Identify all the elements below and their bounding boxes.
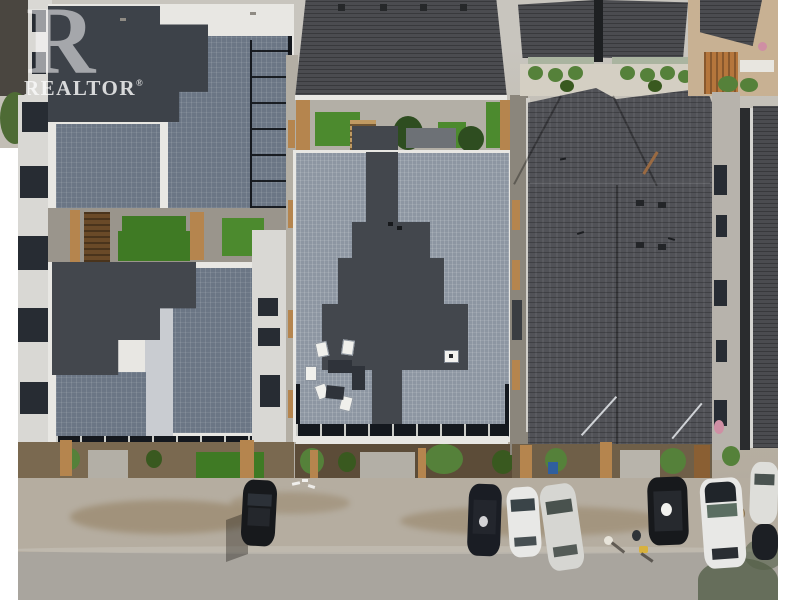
bush bbox=[722, 446, 740, 466]
roof-panel bbox=[56, 124, 162, 208]
awning-white bbox=[740, 60, 774, 72]
pavement-mark bbox=[120, 18, 126, 21]
road-edge bbox=[0, 546, 778, 554]
flowers-pink bbox=[714, 420, 724, 434]
roof-vent bbox=[658, 202, 666, 208]
roof-vent bbox=[388, 222, 393, 226]
window bbox=[20, 166, 48, 198]
bush bbox=[660, 448, 686, 474]
planter-bush bbox=[548, 68, 563, 82]
window bbox=[18, 308, 50, 342]
bush bbox=[146, 450, 162, 468]
window bbox=[258, 298, 278, 316]
window bbox=[714, 280, 727, 306]
roof-vent bbox=[338, 4, 345, 11]
planter-bush bbox=[648, 80, 662, 92]
roof-upper bbox=[603, 0, 688, 60]
roof-panel bbox=[56, 372, 146, 438]
far-right-roof bbox=[753, 106, 778, 448]
planter-bush bbox=[568, 66, 583, 80]
window bbox=[20, 382, 50, 414]
photo-margin-right bbox=[778, 0, 800, 600]
walk-pad bbox=[88, 450, 128, 478]
left-building-facade bbox=[18, 95, 52, 480]
stair-enclosure bbox=[352, 126, 398, 150]
fence bbox=[70, 210, 80, 262]
planter-bush bbox=[660, 66, 675, 80]
passage-gap bbox=[594, 0, 603, 62]
roof-upper bbox=[518, 0, 594, 58]
roof-vent bbox=[636, 200, 644, 206]
patio-chair bbox=[341, 339, 355, 356]
recycle-bin bbox=[548, 462, 558, 474]
pedestrian bbox=[632, 530, 641, 541]
parapet-cap bbox=[296, 436, 508, 444]
roof-box bbox=[406, 128, 456, 148]
patio-table bbox=[352, 366, 365, 390]
planter-bush bbox=[560, 80, 574, 92]
patio-table bbox=[325, 385, 344, 400]
realtor-logo-icon: R bbox=[26, 0, 95, 86]
roof-vent bbox=[636, 242, 644, 248]
fence-post bbox=[512, 360, 520, 390]
bush bbox=[425, 444, 463, 474]
bush bbox=[338, 452, 356, 472]
door bbox=[260, 375, 280, 407]
roof-hatch-dot bbox=[449, 354, 453, 358]
car-black-suv bbox=[647, 476, 689, 545]
car-windshield bbox=[545, 498, 573, 514]
fence-post bbox=[310, 450, 318, 478]
registered-symbol: ® bbox=[136, 78, 144, 88]
pavement-mark bbox=[250, 12, 256, 15]
fence-post bbox=[512, 260, 520, 290]
window bbox=[714, 165, 727, 195]
fence-post bbox=[60, 440, 72, 476]
planter-bush bbox=[528, 66, 543, 80]
balcony-frame-line bbox=[250, 40, 252, 210]
roof-vent bbox=[658, 244, 666, 250]
car-roof-glass bbox=[247, 493, 272, 506]
car-rear-glass bbox=[553, 544, 578, 557]
grass-patch bbox=[118, 231, 190, 261]
fence-post bbox=[600, 442, 612, 478]
building-topcenter-roof bbox=[295, 0, 507, 98]
window bbox=[258, 328, 280, 346]
roof-vent bbox=[420, 4, 427, 11]
spray-mark bbox=[302, 479, 308, 482]
car-black bbox=[240, 479, 277, 547]
building-right-roof bbox=[528, 88, 712, 458]
pedestrian-bag bbox=[639, 546, 648, 553]
fence bbox=[500, 100, 510, 150]
window bbox=[716, 215, 727, 237]
wood-deck bbox=[84, 212, 110, 262]
roof-ridge-line bbox=[616, 185, 618, 453]
realtor-wordmark-text: REALTOR bbox=[24, 76, 136, 100]
aerial-photo-stage: R REALTOR® bbox=[0, 0, 800, 600]
dark-cross-roof bbox=[352, 222, 430, 258]
car-white-darkhood bbox=[699, 477, 747, 570]
window bbox=[18, 236, 48, 270]
car-white bbox=[506, 486, 543, 558]
car-rear-glass bbox=[514, 536, 537, 547]
fence-post bbox=[240, 440, 254, 478]
roof-vent bbox=[397, 226, 402, 230]
alley-shadow bbox=[740, 108, 750, 450]
car-windshield bbox=[510, 498, 535, 512]
planter-bush bbox=[718, 76, 738, 92]
patio-table bbox=[328, 360, 352, 373]
car-dark-navy bbox=[467, 483, 502, 556]
fence-post bbox=[512, 200, 520, 230]
fence-gate bbox=[694, 445, 710, 478]
photo-margin-left bbox=[0, 148, 18, 600]
walk-pad bbox=[620, 450, 660, 478]
roof-ridge-line bbox=[530, 182, 710, 184]
roof-divider bbox=[160, 122, 168, 208]
planter-bush bbox=[620, 66, 635, 80]
window bbox=[22, 102, 48, 132]
car-partial-right bbox=[749, 462, 778, 525]
dark-cross-roof bbox=[366, 152, 398, 222]
planter-bush bbox=[740, 78, 758, 92]
fence bbox=[190, 212, 204, 260]
walk-pad bbox=[360, 452, 415, 478]
car-windshield bbox=[707, 503, 738, 518]
fence-post bbox=[418, 448, 426, 478]
alley-shadow bbox=[512, 300, 522, 340]
patio-chair bbox=[305, 366, 317, 381]
road bbox=[0, 552, 778, 600]
dark-cross-roof bbox=[338, 258, 444, 304]
balcony-frame bbox=[252, 40, 290, 208]
car-partial-dark bbox=[752, 524, 778, 560]
realtor-wordmark: REALTOR® bbox=[24, 76, 144, 101]
car-rear-glass bbox=[712, 547, 739, 560]
flowers-pink bbox=[758, 42, 767, 51]
car-hood-dark bbox=[704, 481, 736, 503]
parapet-edge bbox=[296, 424, 508, 436]
fence bbox=[296, 100, 310, 150]
tree bbox=[458, 126, 484, 152]
aerial-photo: R REALTOR® bbox=[0, 0, 778, 600]
window bbox=[716, 340, 727, 362]
car-roof bbox=[247, 507, 270, 526]
roof-vent bbox=[460, 4, 467, 11]
roof-vent bbox=[380, 4, 387, 11]
fence-post bbox=[520, 445, 532, 478]
car-windshield bbox=[754, 474, 774, 486]
